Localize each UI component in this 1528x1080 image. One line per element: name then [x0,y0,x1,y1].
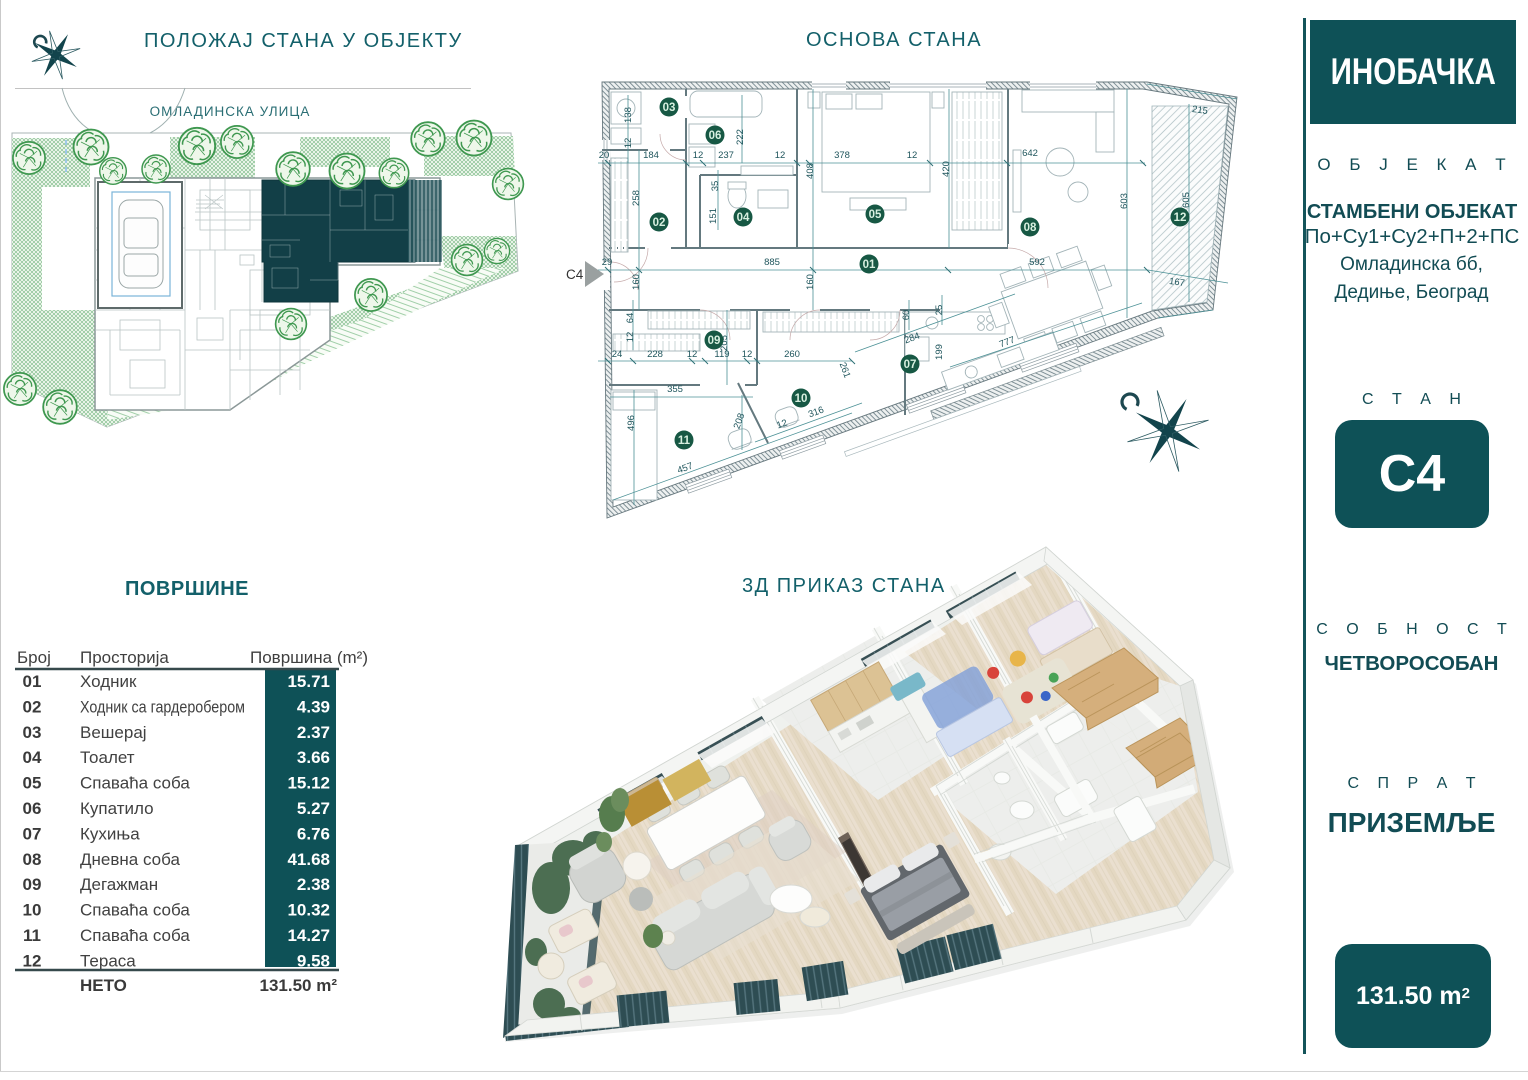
svg-text:08: 08 [1024,222,1037,234]
svg-text:09: 09 [23,875,42,894]
svg-text:4.39: 4.39 [297,697,330,716]
svg-text:131.50 m²: 131.50 m² [260,976,338,995]
svg-text:228: 228 [647,349,663,360]
svg-text:160: 160 [631,274,642,290]
svg-text:Кухиња: Кухиња [80,824,140,843]
svg-text:04: 04 [23,748,42,767]
svg-text:25: 25 [934,305,945,316]
svg-text:355: 355 [667,384,683,395]
svg-text:01: 01 [863,259,876,271]
svg-text:496: 496 [626,415,637,431]
svg-text:05: 05 [869,209,882,221]
svg-text:885: 885 [764,257,780,268]
svg-text:12: 12 [623,138,634,149]
svg-text:208: 208 [732,412,748,431]
svg-text:12: 12 [687,349,698,360]
svg-text:Тоалет: Тоалет [80,748,135,767]
svg-text:10.32: 10.32 [287,901,330,920]
svg-text:02: 02 [653,217,666,229]
svg-text:138: 138 [623,107,634,123]
svg-text:Спаваћа соба: Спаваћа соба [80,774,190,793]
svg-text:Купатило: Купатило [80,799,154,818]
svg-text:14.27: 14.27 [287,926,330,945]
svg-text:06: 06 [709,130,722,142]
svg-text:64: 64 [625,313,636,324]
svg-text:15.12: 15.12 [287,774,330,793]
svg-text:06: 06 [23,799,42,818]
svg-text:215: 215 [1191,104,1208,117]
svg-text:5.27: 5.27 [297,799,330,818]
svg-text:60: 60 [901,310,912,321]
svg-text:3.66: 3.66 [297,748,330,767]
svg-text:05: 05 [23,774,42,793]
svg-text:237: 237 [718,150,734,161]
svg-text:Вешерај: Вешерај [80,723,147,742]
svg-text:03: 03 [663,102,676,114]
svg-text:01: 01 [23,672,42,691]
svg-text:C4: C4 [566,267,584,282]
svg-text:260: 260 [784,349,800,360]
svg-text:Ходник са гардеробером: Ходник са гардеробером [80,697,245,716]
svg-text:Ходник: Ходник [80,672,137,691]
svg-text:10: 10 [795,393,808,405]
svg-text:12: 12 [907,150,918,161]
svg-text:184: 184 [643,150,659,161]
svg-text:08: 08 [23,850,42,869]
svg-text:02: 02 [23,697,42,716]
svg-text:41.68: 41.68 [287,850,330,869]
svg-text:Тераса: Тераса [80,951,136,970]
svg-text:222: 222 [735,129,746,145]
svg-text:10: 10 [23,901,42,920]
svg-text:НЕТО: НЕТО [80,976,127,995]
svg-text:9.58: 9.58 [297,951,330,970]
svg-text:167: 167 [1168,276,1185,289]
svg-text:592: 592 [1029,257,1045,268]
svg-text:Дегажман: Дегажман [80,875,158,894]
svg-text:Просторија: Просторија [80,648,169,667]
svg-text:258: 258 [631,190,642,206]
svg-text:378: 378 [834,150,850,161]
svg-text:12: 12 [742,349,753,360]
svg-text:2.37: 2.37 [297,723,330,742]
svg-text:07: 07 [23,824,42,843]
svg-text:11: 11 [678,435,691,447]
svg-text:12: 12 [23,951,42,970]
svg-text:Спаваћа соба: Спаваћа соба [80,926,190,945]
svg-text:642: 642 [1022,148,1038,159]
svg-text:29: 29 [602,257,613,268]
svg-text:15.71: 15.71 [287,672,330,691]
svg-text:35: 35 [710,181,721,192]
svg-text:2.38: 2.38 [297,875,330,894]
svg-text:261: 261 [837,361,853,380]
svg-text:12: 12 [1174,212,1187,224]
svg-text:Површина (m²): Површина (m²) [250,648,368,667]
svg-text:24: 24 [612,349,623,360]
svg-text:420: 420 [941,161,952,177]
svg-text:04: 04 [737,212,750,224]
svg-text:12: 12 [693,150,704,161]
svg-text:160: 160 [805,274,816,290]
svg-text:457: 457 [676,461,695,477]
svg-text:Број: Број [17,648,51,667]
svg-text:6.76: 6.76 [297,824,330,843]
svg-text:199: 199 [934,344,945,360]
svg-text:12: 12 [775,150,786,161]
svg-text:09: 09 [708,335,721,347]
svg-text:605: 605 [1181,192,1192,208]
svg-text:20: 20 [599,150,610,161]
svg-text:12: 12 [625,332,636,343]
svg-text:07: 07 [904,359,917,371]
svg-text:603: 603 [1119,193,1130,209]
svg-text:Спаваћа соба: Спаваћа соба [80,901,190,920]
svg-text:151: 151 [708,208,719,224]
svg-text:11: 11 [23,926,41,945]
svg-text:03: 03 [23,723,42,742]
svg-text:316: 316 [807,405,826,421]
svg-text:408: 408 [805,163,816,179]
svg-text:Дневна соба: Дневна соба [80,850,180,869]
